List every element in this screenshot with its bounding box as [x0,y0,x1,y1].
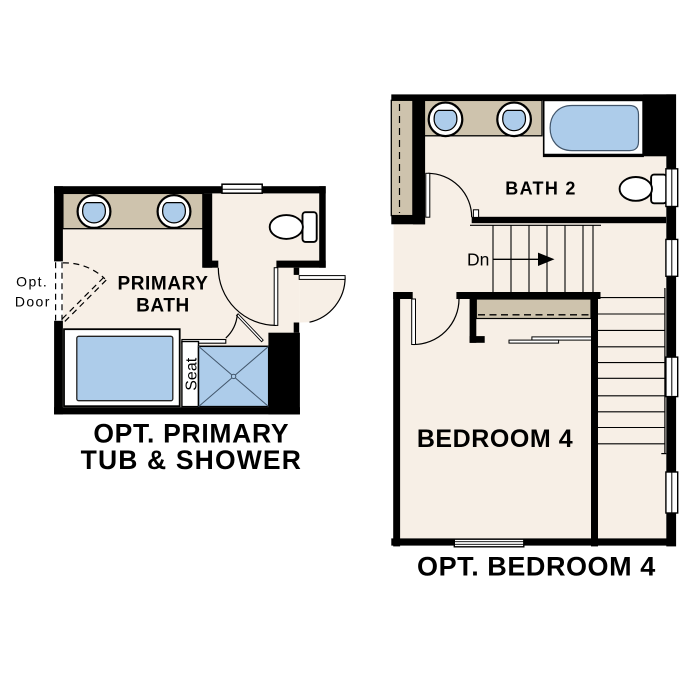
svg-text:Opt.: Opt. [16,273,48,289]
svg-text:OPT. BEDROOM 4: OPT. BEDROOM 4 [417,552,656,582]
svg-text:BEDROOM 4: BEDROOM 4 [417,425,573,453]
svg-text:BATH: BATH [136,296,190,317]
svg-text:Seat: Seat [183,357,200,390]
svg-text:Door: Door [15,294,51,310]
svg-text:Dn: Dn [467,250,489,270]
svg-text:TUB & SHOWER: TUB & SHOWER [81,445,302,475]
svg-text:BATH 2: BATH 2 [505,178,576,198]
svg-text:OPT. PRIMARY: OPT. PRIMARY [93,419,289,449]
svg-text:PRIMARY: PRIMARY [117,274,208,295]
